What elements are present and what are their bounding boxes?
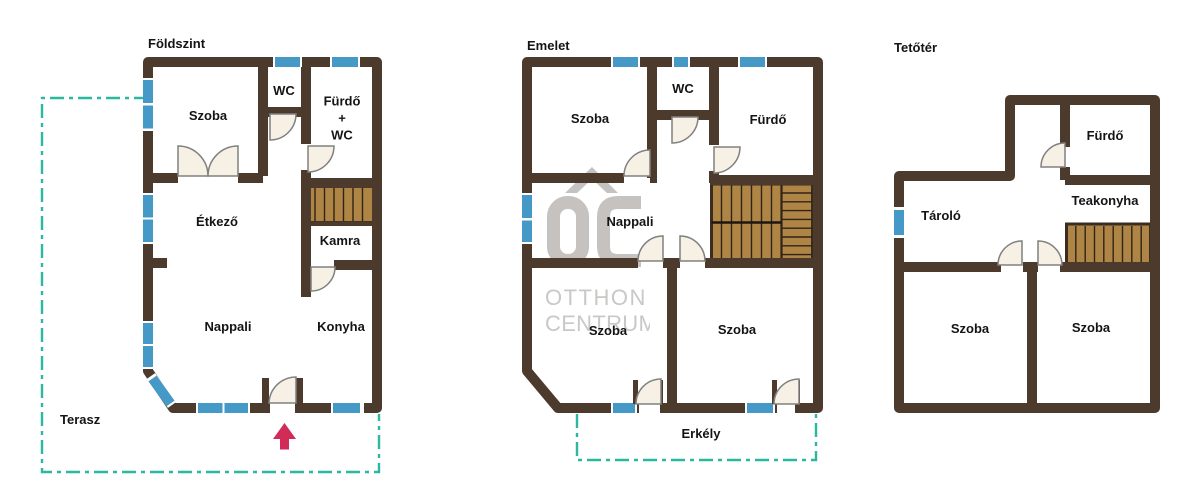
door [270,114,296,140]
window [148,62,360,408]
floorplan-drawing [0,0,1180,500]
door [680,236,705,261]
walls [148,62,377,408]
door-post [296,378,303,404]
door [638,236,663,261]
windows [148,62,364,408]
door [998,241,1022,265]
entrance-door [269,377,296,403]
entrance-arrow-icon [273,423,296,450]
tetoter-plan [899,100,1155,408]
door [178,146,208,176]
door [308,146,334,172]
foldszint-plan [42,62,379,472]
door [636,379,661,404]
door [672,117,698,143]
stairs [301,186,374,227]
door [1041,143,1065,167]
door [1038,241,1062,265]
emelet-plan [527,62,818,460]
door [208,146,238,176]
door [624,150,650,176]
erkely-outline [577,414,816,460]
door [714,147,740,173]
doors [178,114,335,404]
stairs [712,184,813,261]
door-post [262,378,269,404]
floorplan-canvas: OTTHON CENTRUM [0,0,1180,500]
door [311,267,335,291]
door [774,379,799,404]
stairs [1067,224,1151,266]
